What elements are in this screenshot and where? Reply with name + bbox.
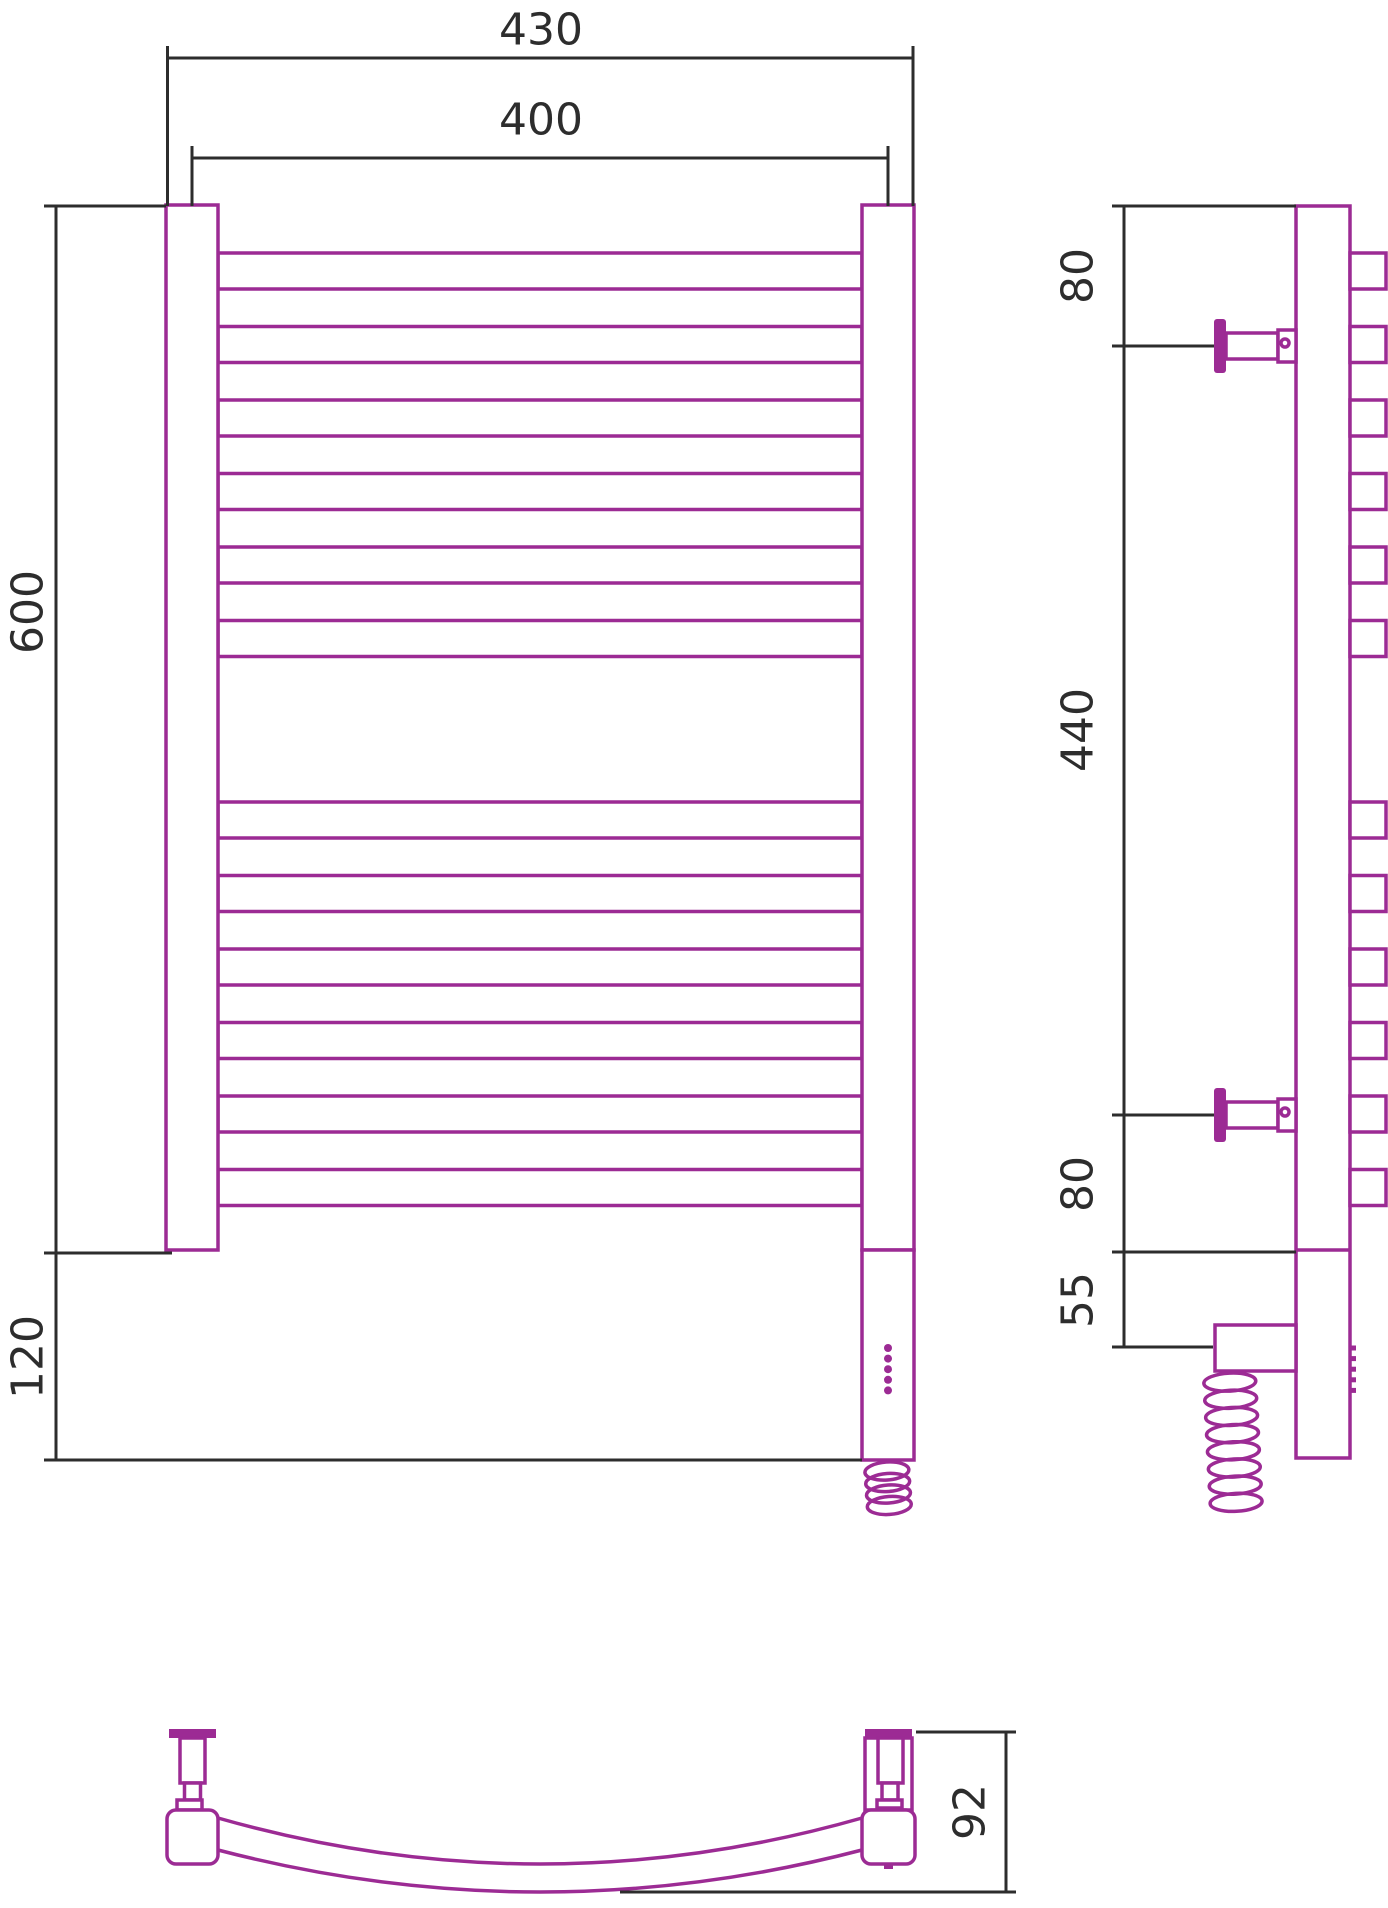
- rung-tube: [218, 802, 862, 838]
- rung-end-square: [1350, 1170, 1386, 1206]
- indicator-dot: [884, 1365, 892, 1373]
- indicator-dot-profile: [1350, 1346, 1356, 1351]
- rung-end-square: [1350, 1023, 1386, 1059]
- indicator-dot: [884, 1355, 892, 1363]
- wall-bracket: [1214, 319, 1296, 373]
- rung-end-square: [1350, 949, 1386, 985]
- side-view: 80 440 80 55: [1053, 206, 1387, 1513]
- power-cable-coil-side: [1203, 1372, 1262, 1513]
- indicator-dot: [884, 1376, 892, 1384]
- rung-tube: [218, 400, 862, 436]
- pin-neck: [882, 1783, 898, 1800]
- dim-label-600: 600: [3, 570, 54, 654]
- dimension-lower-height: 120: [3, 1253, 863, 1460]
- rung-tubes-group: [218, 253, 862, 1206]
- dimension-inner-width: 400: [192, 95, 888, 207]
- indicator-dot-profile: [1350, 1367, 1356, 1372]
- rung-tube: [218, 253, 862, 289]
- rung-tube: [218, 621, 862, 657]
- dimension-body-height: 600: [3, 206, 173, 1253]
- wall-brackets-group: [1214, 319, 1296, 1142]
- power-cable-coil-front: [864, 1461, 912, 1516]
- rung-tube: [218, 1096, 862, 1132]
- rung-end-square: [1350, 547, 1386, 583]
- dim-label-80-bottom: 80: [1053, 1156, 1104, 1212]
- wall-bracket: [1214, 1088, 1296, 1142]
- rung-tube: [218, 474, 862, 510]
- indicator-dot-profile: [1350, 1356, 1356, 1361]
- rung-end-square: [1350, 876, 1386, 912]
- left-collector-block: [167, 1810, 218, 1864]
- block-nub: [884, 1864, 893, 1869]
- pin-base: [877, 1800, 902, 1808]
- right-mounting-pin: [865, 1729, 912, 1810]
- rung-tube: [218, 1023, 862, 1059]
- dim-label-440: 440: [1053, 688, 1104, 772]
- rung-tube: [218, 876, 862, 912]
- front-view: 430 400 600 120: [3, 5, 915, 1516]
- rung-end-square: [1350, 474, 1386, 510]
- rung-end-square: [1350, 253, 1386, 289]
- dimension-depth: 92: [620, 1732, 1016, 1892]
- indicator-dot-profile: [1350, 1377, 1356, 1382]
- pin-neck: [185, 1783, 201, 1800]
- pin-body: [180, 1738, 205, 1783]
- bracket-flange: [1214, 319, 1226, 373]
- dimension-side-chain: 80 440 80 55: [1053, 206, 1297, 1347]
- dim-label-55: 55: [1053, 1272, 1104, 1328]
- rung-end-square: [1350, 1096, 1386, 1132]
- left-post: [166, 205, 218, 1250]
- rung-tube: [218, 327, 862, 363]
- curved-tube-band-top: [218, 1818, 862, 1864]
- dim-label-80-top: 80: [1053, 248, 1104, 304]
- side-post-bar: [1296, 206, 1350, 1458]
- dim-label-430: 430: [499, 5, 583, 56]
- rung-end-square: [1350, 802, 1386, 838]
- bottom-view: 92: [167, 1729, 1016, 1892]
- rung-tube: [218, 1170, 862, 1206]
- rung-tube: [218, 949, 862, 985]
- bracket-arm: [1226, 1102, 1278, 1128]
- rung-tube: [218, 547, 862, 583]
- pin-body: [878, 1738, 903, 1783]
- rung-end-squares-group: [1350, 253, 1386, 1206]
- bracket-flange: [1214, 1088, 1226, 1142]
- dim-label-92: 92: [945, 1784, 996, 1840]
- bracket-arm: [1226, 333, 1278, 359]
- dim-label-400: 400: [499, 95, 583, 146]
- right-collector-block: [862, 1810, 915, 1864]
- right-post: [862, 205, 914, 1250]
- curved-tube-band-bottom: [218, 1850, 862, 1892]
- rung-end-square: [1350, 400, 1386, 436]
- dim-label-120: 120: [3, 1315, 54, 1399]
- rung-end-square: [1350, 327, 1386, 363]
- indicator-dot: [884, 1386, 892, 1394]
- towel-rail-technical-drawing: 430 400 600 120: [0, 0, 1388, 1908]
- rung-end-square: [1350, 621, 1386, 657]
- electric-unit-side-box: [1215, 1325, 1296, 1371]
- coil-loop: [867, 1495, 912, 1516]
- indicator-dot-profile: [1350, 1388, 1356, 1393]
- indicator-dot: [884, 1344, 892, 1352]
- left-mounting-pin: [169, 1729, 216, 1810]
